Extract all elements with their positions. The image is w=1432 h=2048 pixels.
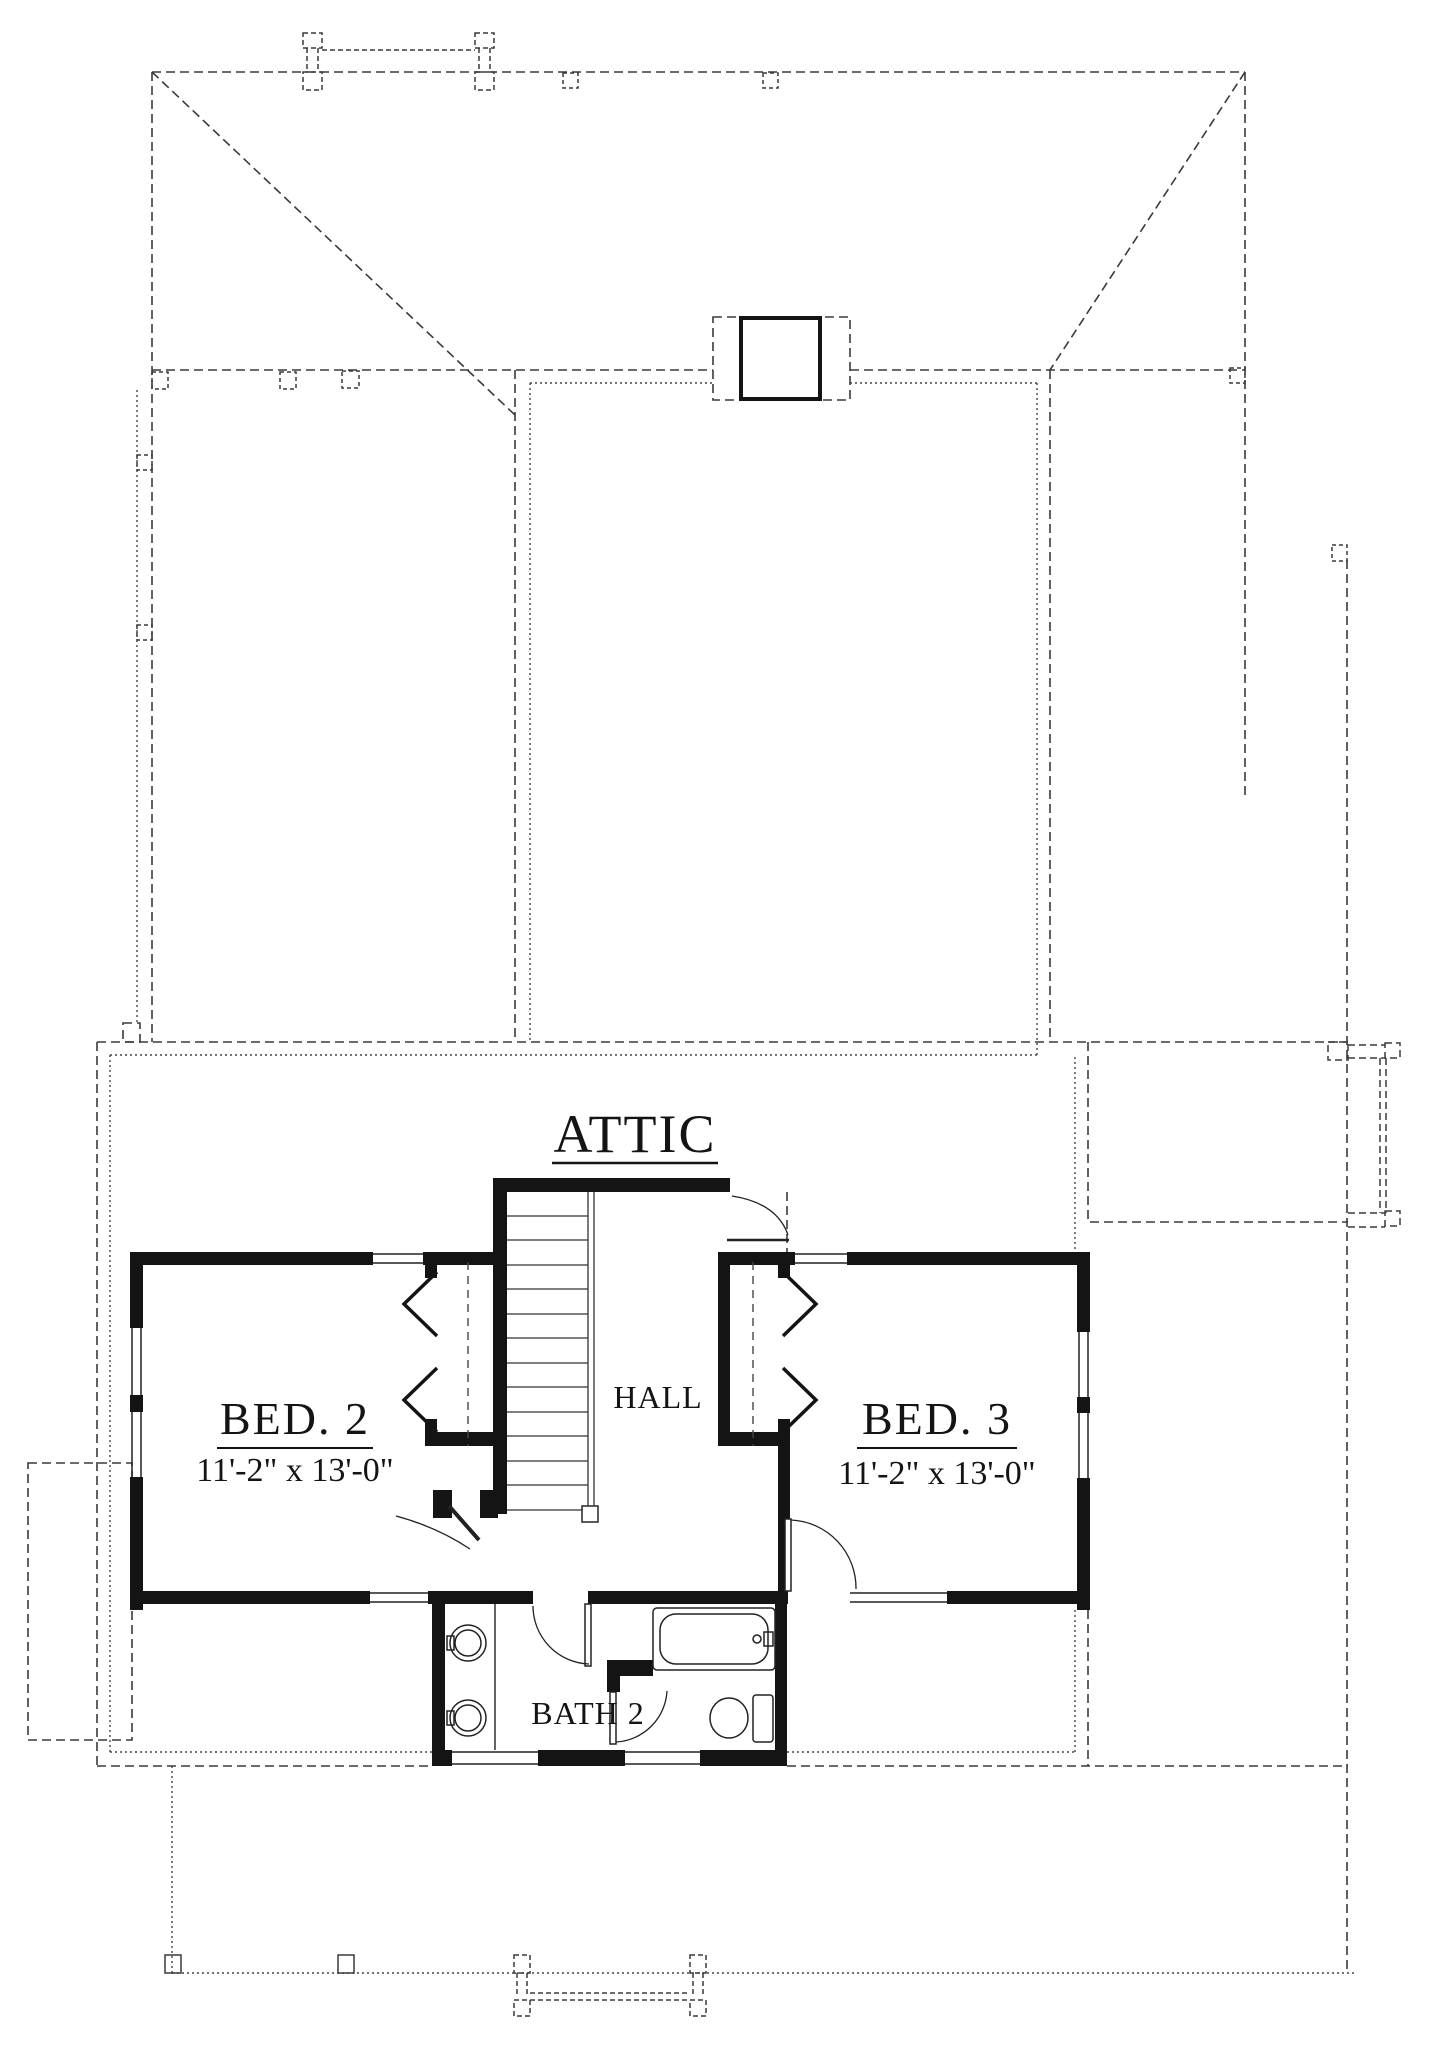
stair-rail: [588, 1192, 594, 1510]
bifold-doors-bed3: [783, 1272, 816, 1432]
wall-top-bed2: [130, 1252, 373, 1265]
window-bed3-bottom: [850, 1593, 947, 1602]
window-bed2-left-2: [132, 1412, 141, 1477]
sink-2: [447, 1700, 486, 1736]
wall-closet3-left: [718, 1265, 730, 1432]
wall-left-upper: [130, 1252, 143, 1328]
room-label-bath2: BATH 2: [531, 1695, 645, 1731]
bottom-stoop: [514, 1955, 706, 2016]
wall-bottom-hall-left: [428, 1591, 533, 1604]
wall-bath-stub-vertical: [607, 1660, 620, 1692]
bed2-dimensions: 11'-2" x 13'-0": [196, 1452, 393, 1489]
door-bath-entry: [533, 1604, 591, 1666]
room-label-attic: ATTIC: [554, 1104, 717, 1164]
wall-bottom-hall-right: [588, 1591, 788, 1604]
wall-right-lower: [1077, 1478, 1090, 1610]
chimney-flue: [741, 318, 820, 399]
chimney: [713, 317, 850, 400]
room-labels: ATTIC BED. 2 11'-2" x 13'-0" BED. 3 11'-…: [196, 1104, 1035, 1731]
toilet-tank: [753, 1695, 773, 1742]
door-bed3: [785, 1519, 856, 1591]
wall-bottom-bed2: [130, 1591, 370, 1604]
window-bed3-right-2: [1079, 1413, 1088, 1478]
staircase: [507, 1192, 598, 1522]
wall-left-mullion: [130, 1395, 143, 1412]
bifold-doors-bed2: [404, 1272, 437, 1432]
wall-right-upper: [1077, 1252, 1090, 1332]
bed2-door-jamb-left: [433, 1490, 452, 1518]
wall-stair-left: [493, 1178, 507, 1514]
window-bath-bottom-1: [452, 1750, 538, 1766]
tub-drain: [753, 1635, 761, 1643]
roof-overhang-outline: [152, 72, 1245, 1252]
window-bed3-right-1: [1079, 1332, 1088, 1397]
bathtub: [653, 1608, 775, 1670]
wall-top-closet3: [718, 1252, 795, 1265]
top-stoop: [303, 33, 494, 90]
closets: [404, 1262, 816, 1446]
toilet-bowl: [710, 1698, 748, 1738]
sink-1: [447, 1625, 486, 1661]
wall-bath-left: [432, 1604, 445, 1750]
roof-hip-left: [152, 72, 515, 415]
window-bed2-bottom: [370, 1593, 428, 1602]
room-label-bed2: BED. 2: [220, 1393, 370, 1444]
roof-hip-right: [1050, 72, 1245, 370]
stair-treads: [507, 1216, 588, 1510]
wall-bath-right: [775, 1604, 787, 1750]
room-label-bed3: BED. 3: [862, 1393, 1012, 1444]
bottom-porch-posts: [165, 1955, 354, 1973]
wall-closet2-bottom: [425, 1432, 507, 1446]
lower-bay-outline: [28, 1463, 132, 1740]
wall-left-lower: [130, 1477, 143, 1610]
bed3-dimensions: 11'-2" x 13'-0": [838, 1455, 1035, 1492]
window-bed2-top: [373, 1254, 423, 1263]
wall-bottom-bed3: [947, 1591, 1090, 1604]
opening-attic-vestibule: [795, 1254, 847, 1263]
side-chimney-chase: [1328, 1042, 1400, 1227]
toilet: [710, 1695, 773, 1742]
wall-top-bed3: [847, 1252, 1090, 1265]
wall-right-mullion: [1077, 1397, 1090, 1413]
door-attic-access: [727, 1196, 789, 1240]
room-label-hall: HALL: [613, 1379, 702, 1415]
bed2-door-jamb-right: [480, 1490, 498, 1518]
attic-floor-plan-drawing: ATTIC BED. 2 11'-2" x 13'-0" BED. 3 11'-…: [0, 0, 1432, 2048]
deck-jog-detail: [123, 1023, 140, 1042]
window-bath-bottom-2: [625, 1750, 700, 1766]
wall-stair-top: [495, 1178, 730, 1192]
walls-below-dotted-lines: [110, 383, 1355, 1973]
wall-closet3-bottom: [718, 1432, 790, 1446]
wall-bath-stub-horizontal: [620, 1660, 653, 1676]
floor-plan-sheet: ATTIC BED. 2 11'-2" x 13'-0" BED. 3 11'-…: [0, 0, 1432, 2048]
window-bed2-left-1: [132, 1328, 141, 1395]
stair-newel-post: [582, 1506, 598, 1522]
